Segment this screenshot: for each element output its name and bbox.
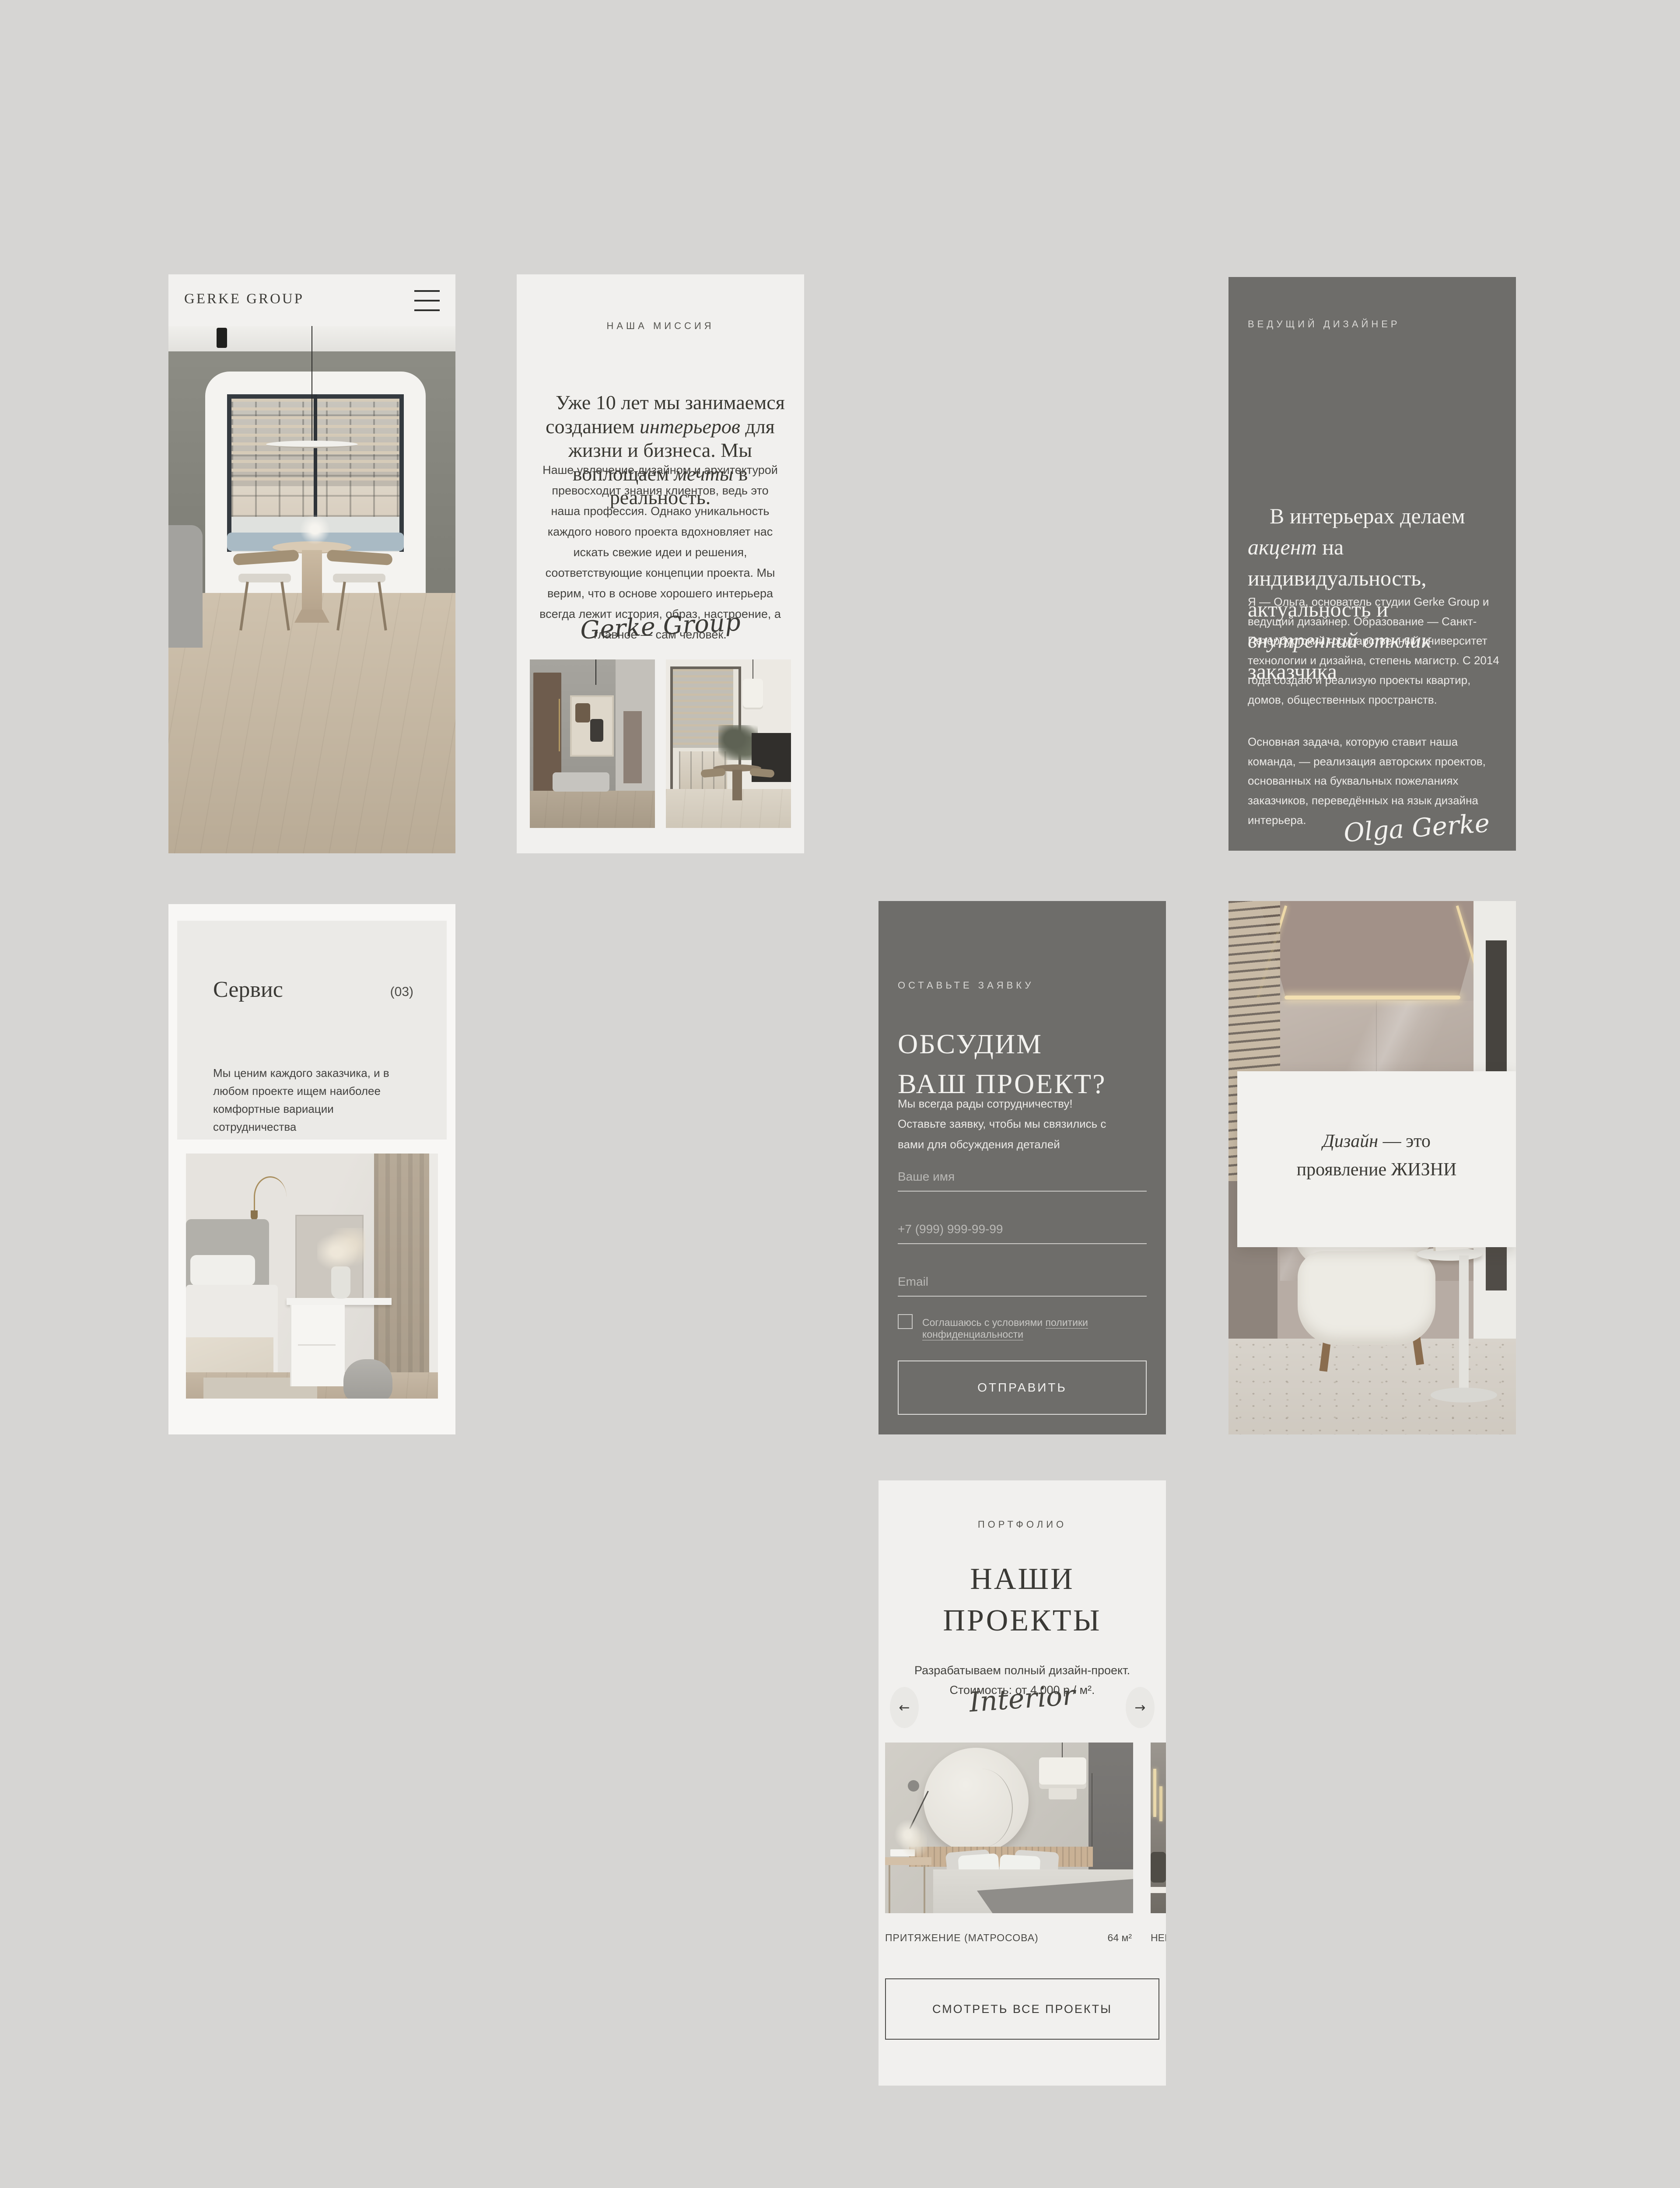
designer-label: ВЕДУЩИЙ ДИЗАЙНЕР: [1248, 319, 1400, 330]
hero-photo-dining-room: [168, 326, 455, 853]
photo-terrazzo-floor: [1228, 1339, 1516, 1434]
heading-part-italic: акцент: [1248, 535, 1317, 559]
project-area: 64 м²: [1108, 1932, 1132, 1944]
quote-card: Дизайн — это проявление ЖИЗНИ: [1237, 1071, 1516, 1247]
heading-part: В интерьерах делаем: [1270, 504, 1470, 528]
quote-line1: Дизайн — это: [1237, 1127, 1516, 1156]
mission-label: НАША МИССИЯ: [517, 320, 804, 332]
photo-pendant-cord: [1062, 1743, 1063, 1758]
photo-sliver-light: [1153, 1769, 1156, 1817]
service-body: Мы ценим каждого заказчика, и в любом пр…: [213, 1064, 401, 1136]
photo-pendant-cord: [752, 659, 753, 680]
email-input[interactable]: [898, 1268, 1147, 1297]
screen-quote: Дизайн — это проявление ЖИЗНИ: [1228, 901, 1516, 1434]
name-input[interactable]: [898, 1163, 1147, 1192]
request-heading: ОБСУДИМ ВАШ ПРОЕКТ?: [898, 1024, 1147, 1104]
photo-bench: [553, 772, 609, 792]
submit-button[interactable]: ОТПРАВИТЬ: [898, 1360, 1147, 1415]
photo-flowers: [300, 514, 330, 545]
photo-pendant-disc: [266, 441, 358, 448]
photo-vanity-drawers: [290, 1305, 345, 1386]
service-card: Сервис (03) Мы ценим каждого заказчика, …: [177, 921, 447, 1140]
screen-request-form: ОСТАВЬТЕ ЗАЯВКУ ОБСУДИМ ВАШ ПРОЕКТ? Мы в…: [878, 901, 1166, 1434]
heading-part-italic: интерьеров: [640, 415, 740, 438]
screen-designer: ВЕДУЩИЙ ДИЗАЙНЕР В интерьерах делаем акц…: [1228, 277, 1516, 851]
request-label: ОСТАВЬТЕ ЗАЯВКУ: [898, 980, 1034, 991]
consent-label: Соглашаюсь с условиями политики конфиден…: [922, 1317, 1150, 1340]
photo-brass-lamp-arc: [254, 1176, 287, 1218]
screen-hero: GERKE GROUP: [168, 274, 455, 853]
photo-vanity-top: [287, 1298, 392, 1305]
quote-line2: проявление ЖИЗНИ: [1237, 1156, 1516, 1184]
project-photo-bedroom[interactable]: [885, 1743, 1133, 1913]
portfolio-heading: НАШИ ПРОЕКТЫ: [878, 1558, 1166, 1641]
photo-drawer-seam: [298, 1344, 336, 1346]
photo-lamp-cone: [251, 1210, 258, 1220]
designer-bio: Я — Ольга, основатель студии Gerke Group…: [1248, 592, 1499, 709]
photo-curtain: [374, 1154, 438, 1399]
quote-text: Дизайн — это проявление ЖИЗНИ: [1237, 1127, 1516, 1184]
mission-photo-hallway: [530, 659, 655, 828]
screen-mission: НАША МИССИЯ Уже 10 лет мы занимаемся соз…: [517, 274, 804, 853]
request-heading-line1: ОБСУДИМ: [898, 1024, 1147, 1064]
photo-pendant-shade: [743, 679, 763, 708]
view-all-projects-button[interactable]: СМОТРЕТЬ ВСЕ ПРОЕКТЫ: [885, 1978, 1159, 2040]
consent-text: Соглашаюсь с условиями: [922, 1317, 1046, 1328]
photo-vanity-shelf: [885, 1857, 931, 1865]
photo-side-table-leg: [1459, 1255, 1469, 1396]
hero-header: GERKE GROUP: [168, 274, 455, 326]
photo-far-door: [623, 711, 642, 783]
photo-wardrobe-handle: [1092, 1773, 1092, 1848]
request-body: Мы всегда рады сотрудничеству! Оставьте …: [898, 1094, 1108, 1154]
photo-art-curve: [951, 1769, 1013, 1848]
quote-word: — это: [1378, 1131, 1431, 1151]
photo-sliver-table: [1151, 1887, 1166, 1893]
portfolio-label: ПОРТФОЛИО: [878, 1519, 1166, 1530]
photo-pendant-tier: [1049, 1788, 1077, 1799]
photo-vanity-leg: [924, 1865, 925, 1913]
portfolio-heading-line1: НАШИ: [878, 1558, 1166, 1600]
photo-dried-flowers: [317, 1228, 365, 1276]
photo-pillow: [190, 1255, 255, 1286]
mission-photo-dining[interactable]: [666, 659, 791, 828]
menu-line: [414, 300, 440, 302]
photo-sliver-plant: [1151, 1852, 1166, 1883]
photo-art-shape: [575, 703, 590, 722]
quote-word-italic: Дизайн: [1323, 1131, 1378, 1151]
photo-chair-seat-right: [333, 574, 385, 582]
photo-pendant-shade: [1039, 1757, 1086, 1789]
screen-service: Сервис (03) Мы ценим каждого заказчика, …: [168, 904, 455, 1434]
screen-portfolio: ПОРТФОЛИО НАШИ ПРОЕКТЫ Разрабатываем пол…: [878, 1480, 1166, 2086]
photo-floor: [530, 791, 655, 828]
photo-flowers: [892, 1817, 927, 1856]
photo-door-handle: [559, 699, 560, 751]
menu-line: [414, 309, 440, 311]
photo-vanity-leg: [889, 1865, 890, 1913]
photo-window-sheer: [429, 1154, 438, 1399]
service-index: (03): [390, 985, 413, 999]
phone-input[interactable]: [898, 1215, 1147, 1244]
photo-floor: [666, 789, 791, 828]
logo[interactable]: GERKE GROUP: [184, 291, 304, 307]
photo-pendant-cord: [311, 326, 312, 442]
portfolio-heading-line2: ПРОЕКТЫ: [878, 1600, 1166, 1641]
photo-window-pane: [1486, 940, 1507, 1076]
menu-line: [414, 290, 440, 292]
project-name: ПРИТЯЖЕНИЕ (МАТРОСОВА): [885, 1932, 1039, 1944]
next-project-name-clipped: НЕВА: [1151, 1932, 1166, 1944]
photo-wall-lamp: [908, 1780, 919, 1792]
service-photo-bedroom: [186, 1154, 438, 1399]
photo-spotlight: [217, 328, 227, 348]
photo-chair-seat-left: [238, 574, 291, 582]
photo-led-glow: [1284, 996, 1460, 999]
project-photo-next-sliver[interactable]: [1151, 1743, 1166, 1913]
photo-sofa: [168, 525, 203, 648]
photo-art-shape: [590, 719, 603, 742]
service-title: Сервис: [213, 977, 283, 1003]
photo-table-leg: [732, 770, 742, 800]
photo-sliver-light: [1159, 1786, 1162, 1821]
photo-wood-floor: [168, 593, 455, 853]
photo-boucle-seat: [1298, 1251, 1435, 1345]
hamburger-menu-icon[interactable]: [414, 290, 440, 311]
photo-light-cord: [595, 659, 596, 685]
photo-ceiling: [1259, 901, 1485, 999]
photo-pouf: [343, 1359, 392, 1399]
photo-side-table-base: [1431, 1388, 1497, 1403]
design-portfolio-canvas: { "colors": { "page_bg": "#d6d5d3", "til…: [0, 0, 1680, 2188]
consent-checkbox[interactable]: [898, 1314, 913, 1329]
